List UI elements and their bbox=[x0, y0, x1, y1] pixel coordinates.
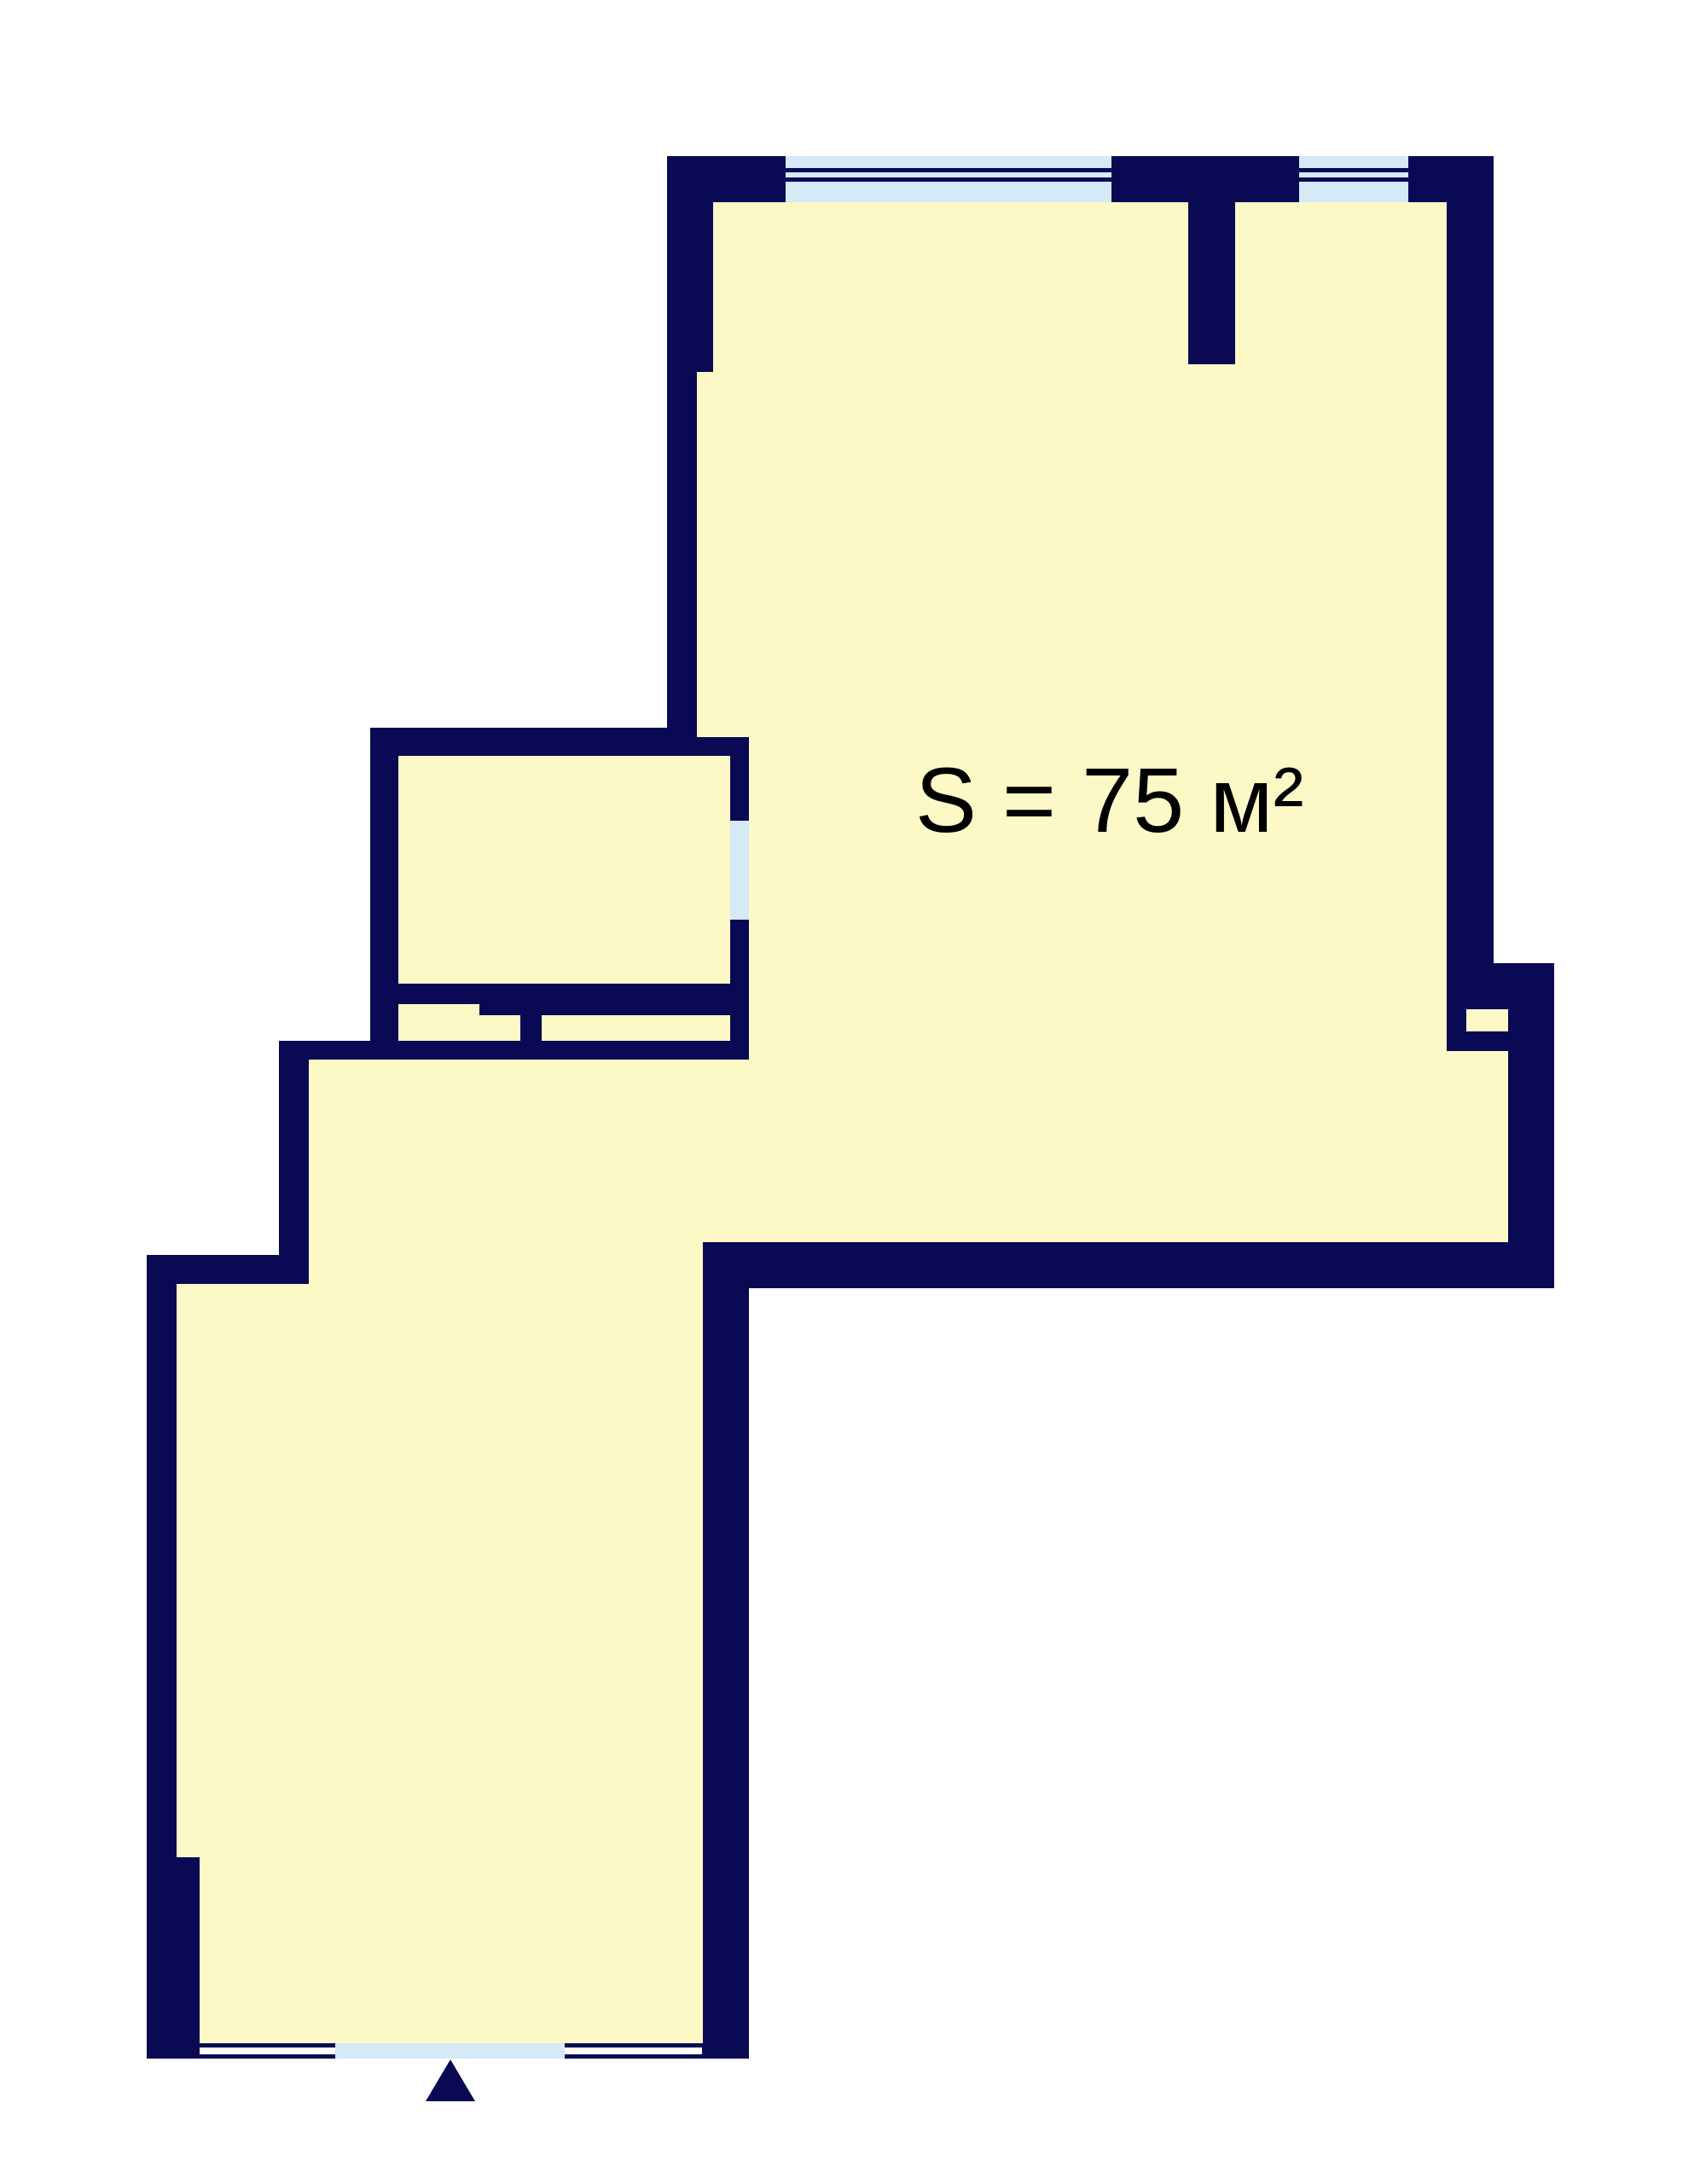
window-top-wide-frame-line-2 bbox=[786, 177, 1111, 182]
bottom-wall-glazing bbox=[200, 2043, 702, 2059]
window-small-room bbox=[730, 821, 749, 920]
wall-niche bbox=[1466, 1009, 1508, 1031]
door-opening-right bbox=[542, 1015, 730, 1041]
window-top-wide bbox=[786, 156, 1111, 202]
window-top-narrow bbox=[1299, 156, 1408, 202]
window-bottom-glass bbox=[335, 2043, 565, 2059]
main-floor bbox=[177, 202, 1508, 2043]
floorplan-canvas: S = 75 м² bbox=[0, 0, 1706, 2184]
small-room-floor bbox=[398, 756, 730, 984]
window-top-wide-frame-line-1 bbox=[786, 168, 1111, 172]
area-label: S = 75 м² bbox=[915, 748, 1303, 851]
window-top-narrow-frame-line-2 bbox=[1299, 177, 1408, 182]
floorplan-drawing: S = 75 м² bbox=[0, 0, 1706, 2184]
window-top-narrow-frame-line-1 bbox=[1299, 168, 1408, 172]
entrance-arrow-icon bbox=[426, 2059, 475, 2101]
